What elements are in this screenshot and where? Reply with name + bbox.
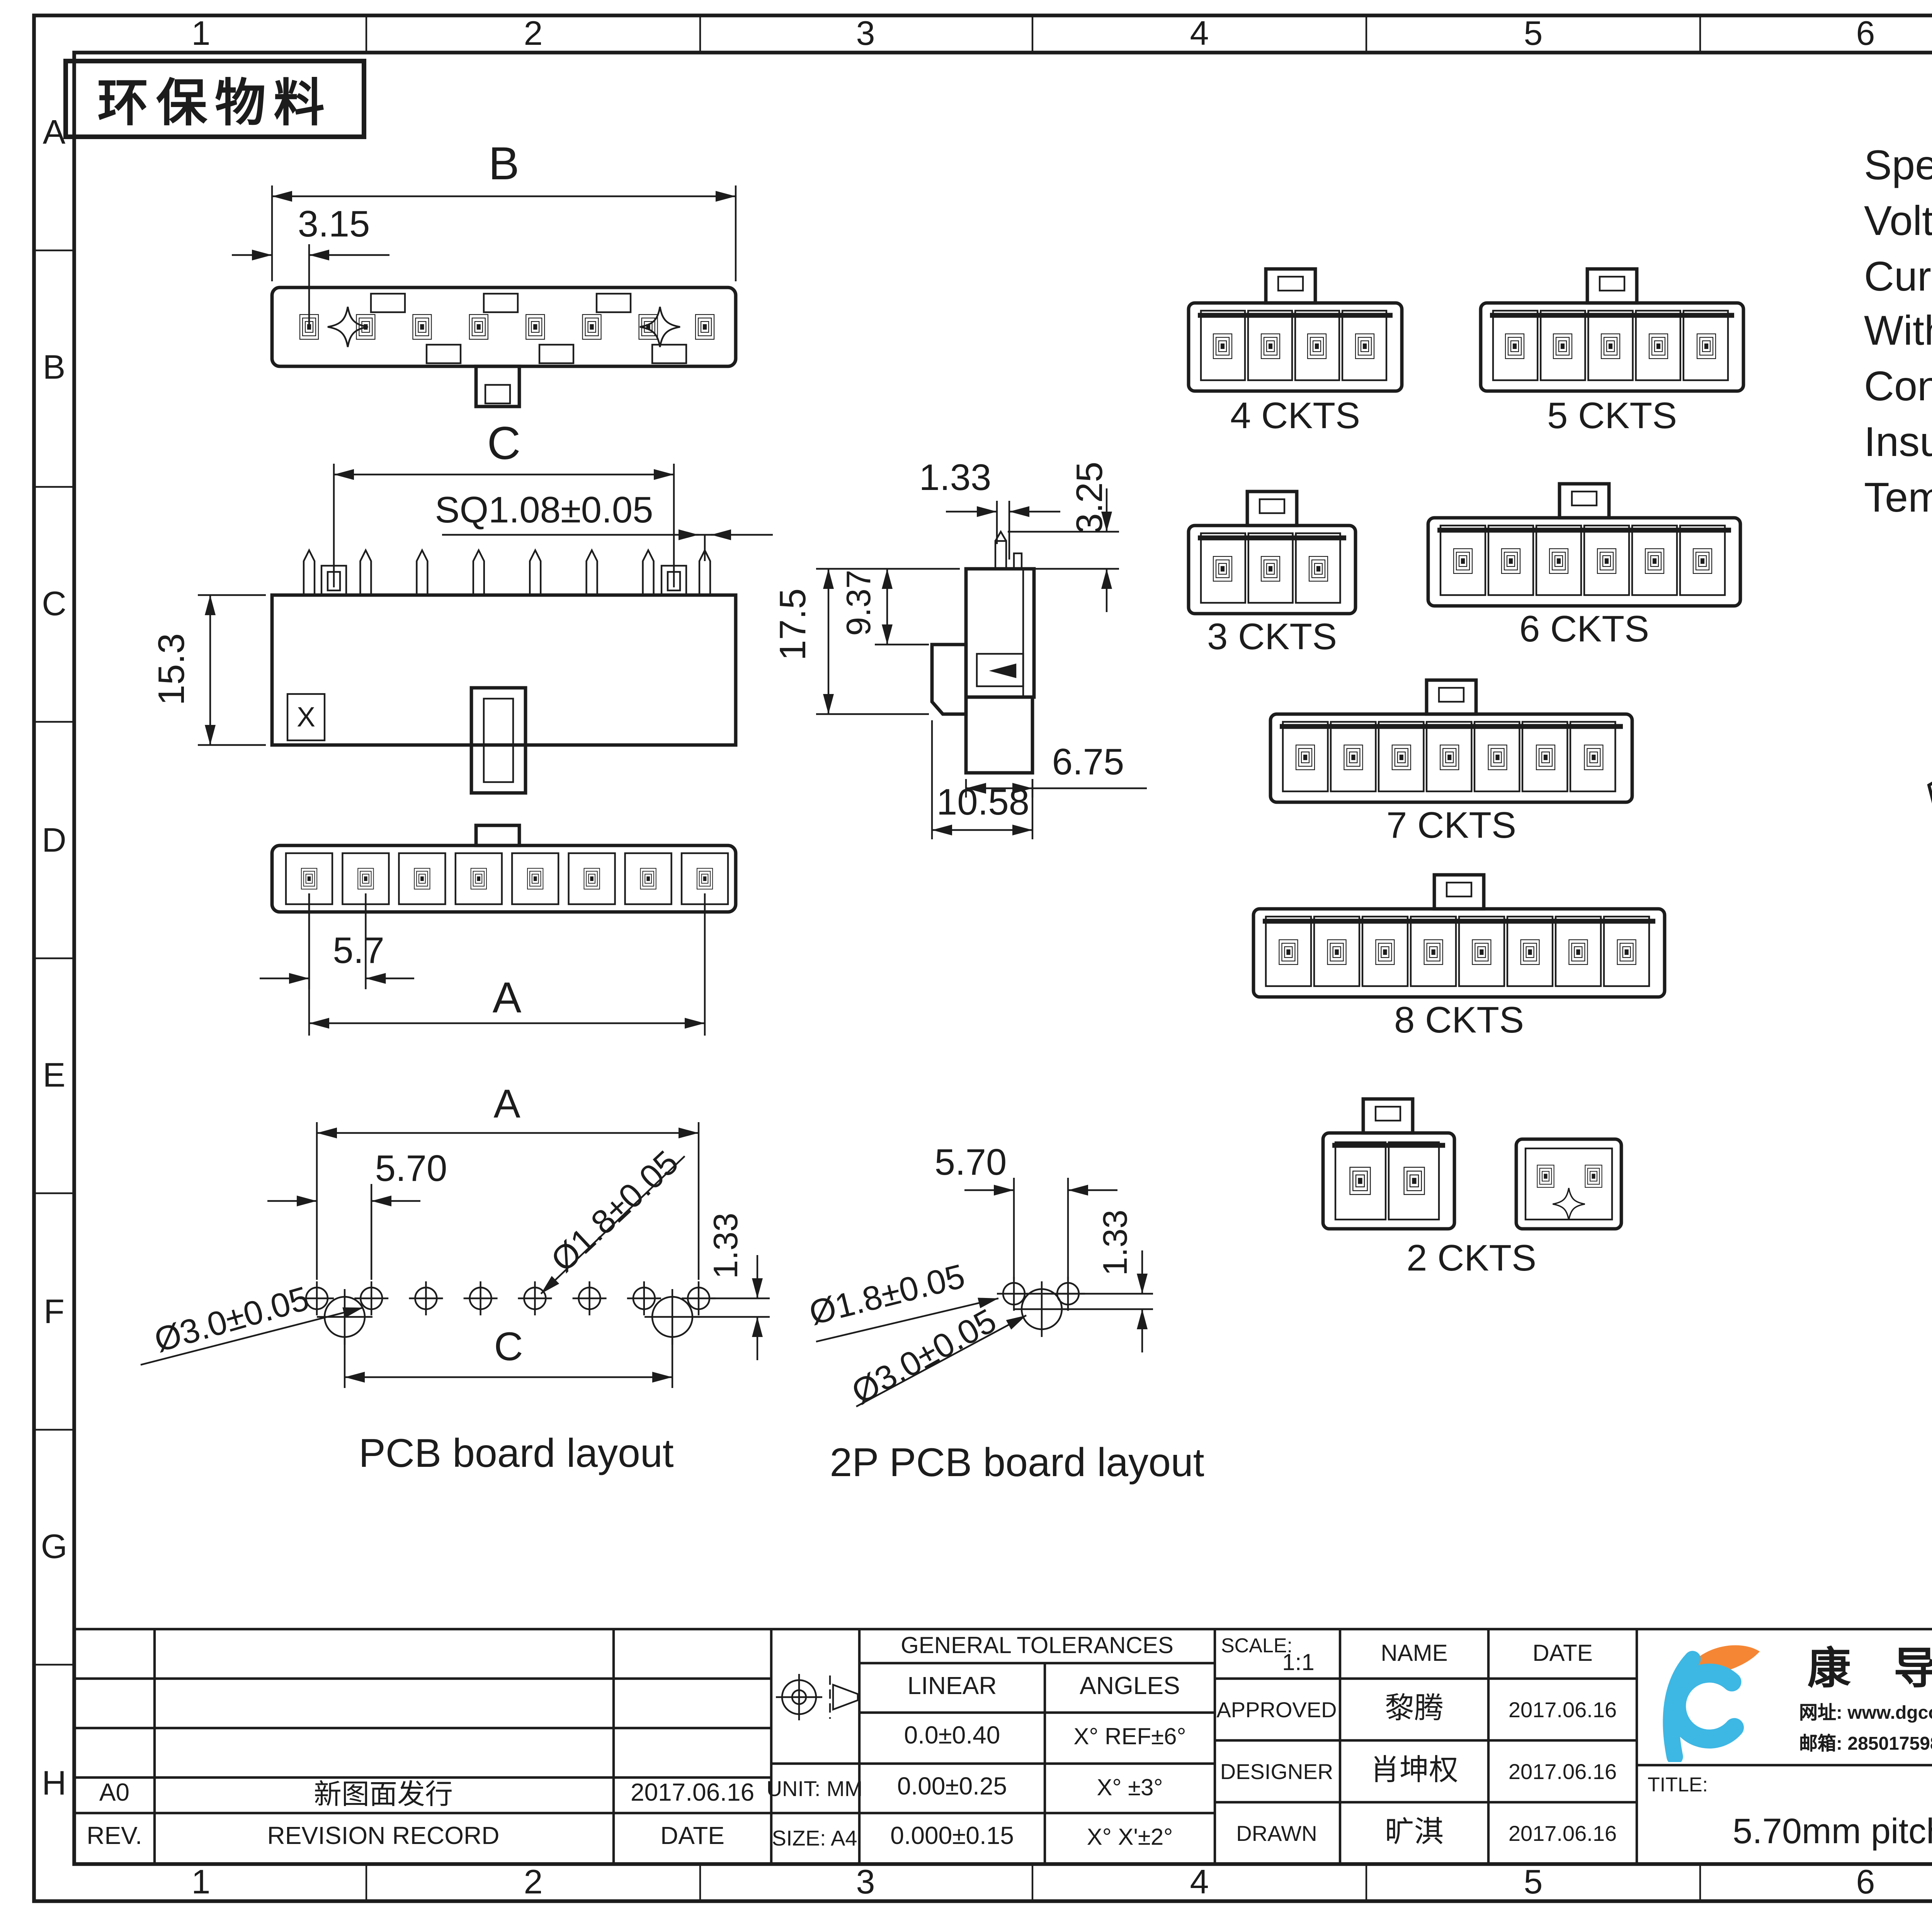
size-label: SIZE: A4 (772, 1827, 857, 1849)
dim-label: 3.15 (298, 207, 370, 244)
contact-line: 网址: www.dgconne.com 电话: 0769-853377633 (1799, 1703, 1932, 1722)
mail-value: 2850175986@qq.com (1847, 1733, 1932, 1754)
dim-label: 1.33 (709, 1213, 743, 1279)
tol-cell: 0.00±0.25 (897, 1776, 1007, 1801)
revision-header: REV. (87, 1825, 142, 1850)
mail-label: 邮箱: (1799, 1733, 1842, 1754)
zone-label: C (42, 587, 66, 621)
view-caption: PCB board layout (359, 1433, 673, 1473)
zone-label: G (41, 1530, 68, 1564)
dim-label: A (493, 1084, 520, 1124)
tol-cell: X° ±3° (1097, 1777, 1163, 1800)
variant-2ckts (1323, 1099, 1621, 1229)
zone-label: A (43, 116, 66, 150)
scale-label: SCALE: (1221, 1635, 1293, 1655)
zone-label: 5 (1524, 17, 1543, 51)
dim-label: 1.33 (1099, 1209, 1133, 1276)
variant-caption: 6 CKTS (1519, 612, 1649, 649)
dim-label: 1.33 (919, 461, 992, 498)
dim-label: C (494, 1326, 523, 1366)
tol-linear-header: LINEAR (907, 1675, 997, 1700)
variant-caption: 4 CKTS (1230, 399, 1360, 436)
signer-date: 2017.06.16 (1509, 1699, 1617, 1720)
signer-date: 2017.06.16 (1509, 1761, 1617, 1782)
zone-label: 2 (524, 1866, 543, 1900)
variant-4ckts (1189, 269, 1402, 391)
variant-caption: 2 CKTS (1406, 1241, 1536, 1278)
zone-label: 3 (856, 17, 875, 51)
variant-8ckts (1253, 875, 1665, 997)
dim-label: 3.25 (1073, 462, 1110, 534)
variant-3ckts (1189, 492, 1355, 614)
tol-angles-header: ANGLES (1080, 1675, 1180, 1700)
spec-line: Withstand Voltage : 2200V AC/minute (1864, 308, 1932, 364)
signer-name: 黎腾 (1385, 1695, 1444, 1724)
tol-cell: X° REF±6° (1074, 1726, 1186, 1749)
variant-6ckts (1428, 484, 1740, 606)
zone-label: D (42, 824, 66, 858)
spec-line: Contact Resistance : 10mΩ(MAX.) (1864, 364, 1932, 419)
zone-label: 4 (1190, 1866, 1209, 1900)
zone-label: E (43, 1059, 66, 1093)
view-caption: 2P PCB board layout (830, 1442, 1204, 1482)
tolerances-title: GENERAL TOLERANCES (901, 1635, 1173, 1658)
dim-label: 17.5 (776, 589, 813, 661)
spec-line: Temperature Range : -40°C~+105°C (1864, 474, 1932, 529)
scale-value: 1:1 (1282, 1652, 1314, 1675)
zone-label: 6 (1856, 17, 1875, 51)
unit-label: UNIT: MM (767, 1778, 863, 1799)
title-label: TITLE: (1648, 1774, 1708, 1795)
sheet-frame (34, 15, 1932, 1901)
dim-label: B (488, 142, 519, 189)
web-value: www.dgconne.com (1847, 1702, 1932, 1723)
signer-name: 旷淇 (1385, 1818, 1444, 1848)
web-label: 网址: (1799, 1702, 1842, 1723)
zone-label: 1 (192, 17, 211, 51)
eco-material-stamp: 环保物料 (63, 59, 366, 139)
zone-label: 4 (1190, 17, 1209, 51)
revision-header: DATE (660, 1825, 724, 1850)
revision-date: 2017.06.16 (631, 1782, 754, 1807)
zone-label: 6 (1856, 1866, 1875, 1900)
drawing-sheet: 环保物料 1 2 3 4 5 6 7 8 1 2 3 4 5 6 7 8 A B… (0, 0, 1932, 1917)
dim-label: 5.7 (333, 934, 384, 971)
variant-caption: 3 CKTS (1207, 620, 1337, 657)
projection-symbol (776, 1674, 858, 1720)
zone-ticks (34, 15, 1932, 1901)
variant-5ckts (1481, 269, 1743, 391)
contact-line: 邮箱: 2850175986@qq.com 传真: 0769-853922827 (1799, 1734, 1932, 1753)
company-name: 康 导 新 能 源 (1808, 1648, 1932, 1691)
spec-title: Specifications: (1864, 142, 1932, 197)
zone-label: 2 (524, 17, 543, 51)
zone-label: 1 (192, 1866, 211, 1900)
signer-role: DRAWN (1236, 1822, 1317, 1844)
signer-date: 2017.06.16 (1509, 1822, 1617, 1844)
date-header: DATE (1532, 1642, 1593, 1665)
zone-label: B (43, 351, 66, 385)
dim-label: 6.75 (1052, 745, 1124, 782)
drawing-title: 5.70mm pitch single Wafer (1733, 1814, 1932, 1849)
dim-label: C (487, 422, 521, 468)
dim-label: 5.70 (935, 1145, 1007, 1182)
view-3d (1929, 638, 1932, 1067)
drawing-title-text: 5.70mm pitch single (1733, 1811, 1932, 1851)
x-marker: X (297, 703, 315, 731)
revision-header: REVISION RECORD (267, 1825, 500, 1850)
revision-record: 新图面发行 (314, 1781, 453, 1808)
zone-label: F (44, 1295, 65, 1329)
spec-line: Insulation Resistance : 1000MΩ(MIN.) (1864, 419, 1932, 474)
signer-role: DESIGNER (1220, 1761, 1333, 1782)
tol-cell: X° X'±2° (1087, 1826, 1173, 1849)
zone-label: 5 (1524, 1866, 1543, 1900)
zone-label: 3 (856, 1866, 875, 1900)
company-logo (1651, 1632, 1777, 1762)
variant-caption: 5 CKTS (1547, 399, 1677, 436)
variant-caption: 8 CKTS (1394, 1003, 1524, 1040)
specifications: Specifications: Voltage Rating : 600V AC… (1864, 142, 1932, 529)
dim-label: 15.3 (155, 633, 192, 706)
tol-cell: 0.0±0.40 (904, 1725, 1000, 1750)
spec-line: Voltage Rating : 600V AC/DC (1864, 197, 1932, 253)
dim-label: 5.70 (375, 1152, 447, 1189)
variant-7ckts (1270, 680, 1632, 802)
signer-name: 肖坤权 (1370, 1757, 1458, 1786)
variant-caption: 7 CKTS (1386, 808, 1516, 845)
name-header: NAME (1381, 1642, 1447, 1665)
zone-label: H (42, 1767, 66, 1801)
dim-label: 9.37 (842, 570, 876, 636)
dim-label: SQ1.08±0.05 (435, 493, 653, 530)
dim-label: A (493, 977, 522, 1020)
drawing-lineart (0, 0, 1932, 1917)
tol-cell: 0.000±0.15 (890, 1825, 1014, 1850)
dim-label: 10.58 (937, 785, 1029, 822)
signer-role: APPROVED (1216, 1699, 1337, 1720)
revision-rev: A0 (99, 1782, 129, 1807)
spec-line: Current Rating : 10A AC,DC (1864, 253, 1932, 308)
